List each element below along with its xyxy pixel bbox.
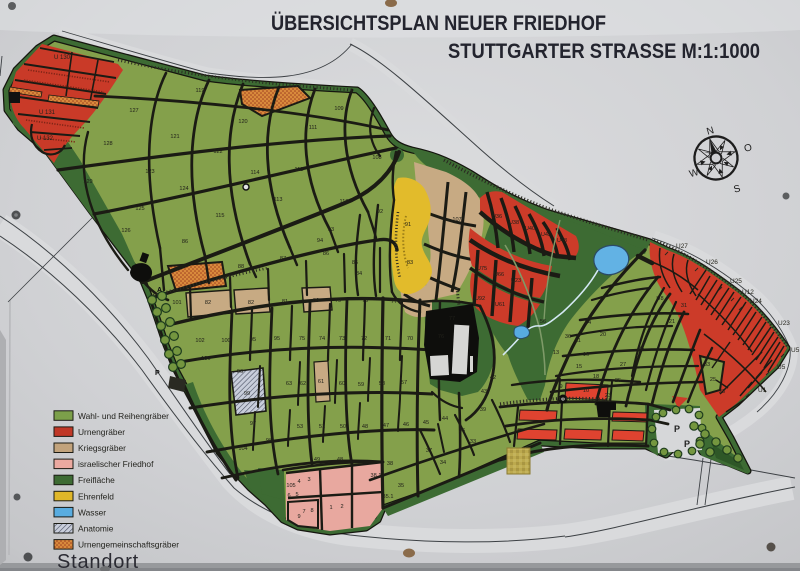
svg-text:36: 36 <box>565 334 571 340</box>
svg-text:129: 129 <box>83 179 92 185</box>
svg-text:U5: U5 <box>791 347 800 354</box>
svg-text:108: 108 <box>372 155 381 161</box>
svg-text:125: 125 <box>135 206 144 212</box>
svg-text:82: 82 <box>205 300 211 306</box>
svg-text:113: 113 <box>274 197 283 203</box>
svg-text:ÜBERSICHTSPLAN NEUER FRIEDHOF: ÜBERSICHTSPLAN NEUER FRIEDHOF <box>271 12 606 35</box>
svg-text:50: 50 <box>340 424 346 430</box>
svg-text:39: 39 <box>480 407 486 413</box>
svg-text:U25: U25 <box>730 278 742 285</box>
svg-text:Wahl- und Reihengräber: Wahl- und Reihengräber <box>78 411 169 421</box>
svg-text:124: 124 <box>179 186 188 192</box>
svg-text:94: 94 <box>317 238 323 244</box>
svg-text:86: 86 <box>323 251 329 257</box>
svg-text:93: 93 <box>328 227 334 233</box>
svg-text:126: 126 <box>121 228 130 234</box>
svg-text:74: 74 <box>319 336 325 342</box>
svg-text:Urnengräber: Urnengräber <box>78 427 125 437</box>
svg-text:73: 73 <box>339 336 345 342</box>
svg-text:STUTTGARTER STRASSE M:1:1000: STUTTGARTER STRASSE M:1:1000 <box>448 40 760 63</box>
svg-text:63: 63 <box>286 381 292 387</box>
svg-text:112: 112 <box>295 167 304 173</box>
svg-text:48: 48 <box>337 457 343 463</box>
svg-text:18: 18 <box>593 374 599 380</box>
svg-text:43: 43 <box>481 389 487 395</box>
svg-text:44: 44 <box>442 416 448 422</box>
svg-text:25: 25 <box>710 377 716 383</box>
svg-text:80: 80 <box>313 298 319 304</box>
svg-text:48: 48 <box>362 424 368 430</box>
svg-text:U 130: U 130 <box>54 55 71 61</box>
svg-text:P: P <box>684 439 690 449</box>
svg-text:107: 107 <box>452 217 461 223</box>
svg-text:109: 109 <box>334 106 343 112</box>
svg-text:101: 101 <box>172 300 181 306</box>
svg-text:72: 72 <box>361 336 367 342</box>
svg-text:U36: U36 <box>492 214 502 220</box>
svg-text:25: 25 <box>615 378 621 384</box>
svg-text:45: 45 <box>423 420 429 426</box>
svg-text:Wasser: Wasser <box>78 507 106 517</box>
svg-text:46: 46 <box>403 422 409 428</box>
svg-text:Standort: Standort <box>57 551 139 571</box>
svg-text:51: 51 <box>319 424 325 430</box>
svg-text:98: 98 <box>266 438 272 444</box>
svg-text:34: 34 <box>440 460 446 466</box>
svg-text:24: 24 <box>585 320 591 326</box>
svg-text:Kriegsgräber: Kriegsgräber <box>78 443 126 453</box>
svg-text:38.1: 38.1 <box>371 473 382 479</box>
svg-text:33: 33 <box>470 439 476 445</box>
svg-text:35.1: 35.1 <box>383 494 394 500</box>
svg-text:23: 23 <box>719 389 725 395</box>
svg-text:23: 23 <box>605 393 611 399</box>
svg-text:U5: U5 <box>777 364 786 371</box>
svg-text:U40: U40 <box>525 226 535 232</box>
svg-text:4: 4 <box>297 479 300 485</box>
svg-text:123: 123 <box>145 169 154 175</box>
svg-text:U23: U23 <box>778 320 790 327</box>
svg-text:U38: U38 <box>509 220 519 226</box>
svg-text:1: 1 <box>329 505 332 511</box>
svg-text:36: 36 <box>459 428 465 434</box>
svg-text:Anatomie: Anatomie <box>78 524 114 534</box>
svg-text:9: 9 <box>297 514 300 520</box>
svg-text:U1: U1 <box>758 387 767 394</box>
svg-text:31: 31 <box>681 303 687 309</box>
svg-text:56: 56 <box>540 319 546 325</box>
svg-text:95: 95 <box>274 336 280 342</box>
svg-text:49: 49 <box>314 457 320 463</box>
svg-text:P: P <box>674 424 680 434</box>
svg-text:81: 81 <box>282 299 288 305</box>
svg-text:26: 26 <box>638 346 644 352</box>
svg-text:59: 59 <box>358 382 364 388</box>
svg-text:7: 7 <box>302 509 305 515</box>
svg-text:96: 96 <box>237 369 243 375</box>
svg-text:88: 88 <box>238 264 244 270</box>
svg-text:120: 120 <box>238 119 247 125</box>
svg-text:77: 77 <box>391 299 397 305</box>
svg-text:U43: U43 <box>557 238 567 244</box>
svg-text:71: 71 <box>385 336 391 342</box>
svg-text:35: 35 <box>398 483 404 489</box>
svg-text:21: 21 <box>669 319 675 325</box>
svg-text:84: 84 <box>356 271 362 277</box>
svg-text:33: 33 <box>704 362 710 368</box>
svg-text:128: 128 <box>103 141 112 147</box>
svg-text:57: 57 <box>401 380 407 386</box>
svg-text:60: 60 <box>339 381 345 387</box>
svg-text:119: 119 <box>196 88 205 94</box>
svg-text:U 132: U 132 <box>37 136 54 142</box>
svg-text:77: 77 <box>449 316 455 322</box>
svg-text:U27: U27 <box>676 243 688 250</box>
svg-text:102: 102 <box>195 338 204 344</box>
svg-text:Urnengemeinschaftsgräber: Urnengemeinschaftsgräber <box>78 540 179 550</box>
svg-text:97: 97 <box>250 421 256 427</box>
svg-text:U23: U23 <box>511 278 521 284</box>
svg-text:92: 92 <box>377 209 383 215</box>
svg-text:85: 85 <box>352 260 358 266</box>
svg-text:115: 115 <box>216 213 225 219</box>
svg-text:U42: U42 <box>541 232 551 238</box>
svg-text:86: 86 <box>182 239 188 245</box>
svg-text:Freifläche: Freifläche <box>78 475 115 485</box>
svg-text:U12: U12 <box>742 289 754 296</box>
svg-text:16: 16 <box>583 352 589 358</box>
svg-text:U24: U24 <box>750 298 762 305</box>
svg-text:A: A <box>157 287 162 294</box>
svg-text:121: 121 <box>170 134 179 140</box>
svg-text:13: 13 <box>553 350 559 356</box>
svg-text:87: 87 <box>280 256 286 262</box>
svg-text:110: 110 <box>340 199 349 205</box>
svg-text:8: 8 <box>310 508 313 514</box>
svg-text:3: 3 <box>307 477 310 483</box>
svg-text:82: 82 <box>248 300 254 306</box>
svg-text:U8: U8 <box>656 296 663 302</box>
svg-text:6: 6 <box>287 493 290 499</box>
svg-text:91: 91 <box>405 222 411 228</box>
svg-text:127: 127 <box>129 108 138 114</box>
svg-text:47: 47 <box>383 423 389 429</box>
svg-text:←106: ←106 <box>196 356 211 362</box>
svg-text:76: 76 <box>438 334 444 340</box>
svg-text:U26: U26 <box>706 259 718 266</box>
svg-text:100: 100 <box>221 338 230 344</box>
svg-text:105: 105 <box>286 483 295 489</box>
svg-text:78: 78 <box>362 298 368 304</box>
svg-text:111: 111 <box>309 125 318 131</box>
svg-text:95: 95 <box>250 337 256 343</box>
svg-text:37: 37 <box>426 448 432 454</box>
svg-text:15: 15 <box>576 364 582 370</box>
svg-text:79: 79 <box>335 298 341 304</box>
svg-text:U75: U75 <box>477 266 487 272</box>
svg-text:11: 11 <box>575 338 581 344</box>
svg-text:122: 122 <box>213 149 222 155</box>
svg-text:75: 75 <box>299 336 305 342</box>
svg-text:104: 104 <box>238 446 247 452</box>
svg-text:U61: U61 <box>495 302 505 308</box>
svg-text:62: 62 <box>300 381 306 387</box>
svg-text:38: 38 <box>387 461 393 467</box>
svg-text:99: 99 <box>244 391 250 397</box>
svg-text:20: 20 <box>600 332 606 338</box>
svg-text:61: 61 <box>318 379 324 385</box>
svg-text:Ehrenfeld: Ehrenfeld <box>78 491 114 501</box>
svg-text:53: 53 <box>297 424 303 430</box>
svg-text:83: 83 <box>407 260 413 266</box>
svg-text:U 131: U 131 <box>39 110 56 116</box>
svg-text:27: 27 <box>620 362 626 368</box>
svg-text:U92: U92 <box>475 296 485 302</box>
svg-text:9: 9 <box>559 384 562 390</box>
svg-text:2: 2 <box>340 504 343 510</box>
svg-text:70: 70 <box>407 336 413 342</box>
svg-text:israelischer Friedhof: israelischer Friedhof <box>78 459 154 469</box>
svg-text:10: 10 <box>583 388 589 394</box>
svg-text:114: 114 <box>251 170 260 176</box>
svg-text:5: 5 <box>295 492 298 498</box>
svg-text:U66: U66 <box>494 272 504 278</box>
svg-text:P: P <box>155 370 160 377</box>
svg-text:42: 42 <box>490 375 496 381</box>
svg-text:58: 58 <box>379 381 385 387</box>
